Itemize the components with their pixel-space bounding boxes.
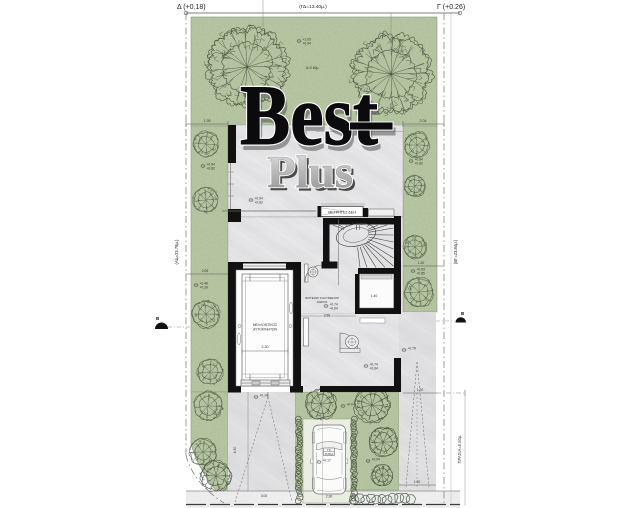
svg-text:Γ (+0.26): Γ (+0.26): [437, 4, 465, 11]
svg-text:(ΑΔ=23.78μ.): (ΑΔ=23.78μ.): [174, 239, 179, 264]
svg-text:2.30: 2.30: [326, 495, 333, 499]
svg-text:ΓΚ: ΓΚ: [327, 448, 331, 452]
svg-text:(ΓΔ=13.40μ.): (ΓΔ=13.40μ.): [299, 4, 327, 10]
svg-text:1.20: 1.20: [417, 388, 424, 392]
svg-text:+0.64: +0.64: [370, 367, 379, 371]
svg-text:ΧΩΡΟΣ: ΧΩΡΟΣ: [317, 300, 328, 304]
svg-text:(ΒΓ=23.84μ.): (ΒΓ=23.84μ.): [453, 239, 458, 264]
svg-text:ΠΡΑΣΙΑ=5.50μ.: ΠΡΑΣΙΑ=5.50μ.: [457, 434, 462, 463]
svg-text:4.50: 4.50: [233, 447, 237, 454]
svg-text:Δ (+0.18): Δ (+0.18): [177, 4, 206, 11]
svg-text:ΑΥΤΟΚΙΝΗΤΩΝ: ΑΥΤΟΚΙΝΗΤΩΝ: [253, 328, 278, 332]
svg-text:2.05: 2.05: [202, 269, 209, 273]
svg-text:+0.39: +0.39: [200, 286, 209, 290]
svg-text:+0.82: +0.82: [415, 162, 424, 166]
svg-text:Plus: Plus: [267, 146, 353, 197]
svg-text:+0.82: +0.82: [255, 201, 264, 205]
svg-text:2.04: 2.04: [420, 119, 427, 123]
svg-text:1.90: 1.90: [414, 480, 421, 484]
svg-text:2.96: 2.96: [324, 314, 330, 318]
svg-text:+0.64: +0.64: [330, 307, 339, 311]
svg-text:2.30: 2.30: [262, 345, 269, 349]
svg-text:ΜΕΛΛΟΝΤΙΚΟΣ: ΜΕΛΛΟΝΤΙΚΟΣ: [253, 323, 278, 327]
svg-text:15.00μ²: 15.00μ²: [325, 452, 334, 456]
svg-text:1.20: 1.20: [418, 261, 425, 265]
svg-text:+0.14: +0.14: [260, 394, 269, 398]
svg-text:3.00: 3.00: [261, 494, 268, 498]
svg-text:+0.04: +0.04: [372, 458, 381, 462]
svg-text:+0.85: +0.85: [417, 272, 426, 276]
svg-text:1.40: 1.40: [371, 294, 378, 298]
svg-text:ΜΕΤΡΗΤΕΣ ΔΕΗ: ΜΕΤΡΗΤΕΣ ΔΕΗ: [328, 211, 356, 215]
svg-text:1.95: 1.95: [204, 119, 211, 123]
svg-text:+0.82: +0.82: [207, 167, 216, 171]
svg-text:+0.79: +0.79: [408, 347, 417, 351]
svg-text:+0.94: +0.94: [303, 42, 312, 46]
svg-text:+0.04: +0.04: [347, 403, 356, 407]
svg-text:+0.17: +0.17: [323, 459, 332, 463]
